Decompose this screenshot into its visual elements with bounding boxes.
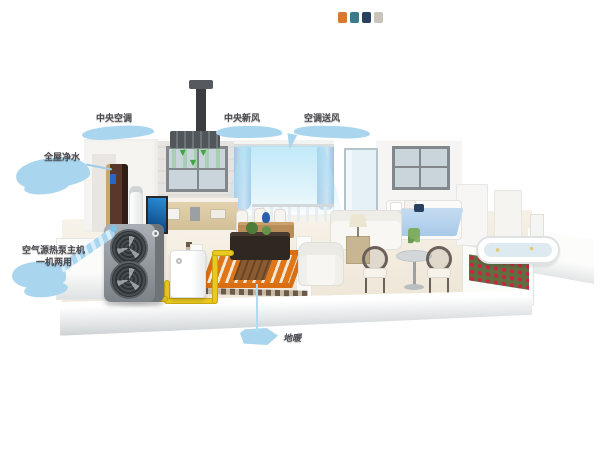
round-table-stem bbox=[413, 258, 416, 286]
table-plant bbox=[246, 222, 258, 234]
chair-legs bbox=[365, 278, 385, 293]
callout-label-ac-supply: 空调送风 bbox=[304, 111, 340, 124]
bed-pillow bbox=[390, 202, 402, 211]
heat-pump-logo-icon bbox=[152, 230, 159, 237]
water-pipe bbox=[212, 250, 234, 256]
kitchen-appliance bbox=[190, 207, 200, 221]
chair-legs bbox=[429, 278, 449, 293]
callout-label-heat-pump-line2: 一机两用 bbox=[36, 255, 72, 268]
water-pipe bbox=[212, 250, 218, 304]
callout-label-water-purifier: 全屋净水 bbox=[44, 150, 80, 163]
lamp-stem bbox=[357, 227, 359, 237]
coffee-table bbox=[230, 232, 290, 260]
callout-label-floor-heating: 地暖 bbox=[283, 331, 304, 344]
callout-bubble-floor-heating bbox=[240, 328, 278, 345]
water-pipe bbox=[164, 298, 218, 304]
vase-plant bbox=[408, 228, 420, 252]
round-table-base bbox=[404, 284, 424, 290]
callout-label-fresh-air: 中央新风 bbox=[224, 111, 260, 124]
callout-bubble-ac-supply bbox=[294, 125, 370, 140]
fresh-air-arrows-icon: ▼ ▼ ▼ bbox=[172, 148, 220, 168]
bath-water bbox=[484, 243, 552, 257]
heat-pump-fan bbox=[110, 261, 148, 299]
hydro-module-indoor-unit bbox=[170, 250, 206, 298]
chair-seat bbox=[427, 268, 451, 278]
leader-dot bbox=[110, 225, 117, 232]
callout-label-central-ac: 中央空调 bbox=[96, 111, 132, 124]
blue-vase bbox=[262, 212, 270, 223]
sofa-pillow bbox=[362, 12, 371, 23]
leader-line-floor-heating bbox=[256, 284, 258, 332]
sofa-pillow bbox=[350, 12, 359, 23]
ceiling-fresh-air-unit bbox=[170, 131, 220, 148]
rattan-chair bbox=[360, 246, 390, 294]
sofa-pillow bbox=[338, 12, 347, 23]
bed-pillow bbox=[414, 204, 424, 212]
scene: ▼ ▼ ▼ bbox=[0, 0, 600, 450]
kitchen-appliance bbox=[166, 208, 180, 220]
callout-bubble-fresh-air bbox=[216, 126, 282, 138]
table-lamp bbox=[349, 214, 367, 227]
kitchen-appliance bbox=[210, 209, 226, 219]
cabinet-display bbox=[110, 174, 116, 184]
kitchen-cabinets bbox=[156, 198, 238, 230]
rug-center-panel bbox=[233, 258, 274, 280]
bed-blanket bbox=[395, 208, 464, 236]
chair-seat bbox=[363, 268, 387, 278]
table-plant bbox=[262, 226, 271, 235]
water-purifier-unit bbox=[129, 186, 143, 228]
fresh-air-roof-duct bbox=[196, 84, 206, 134]
bedroom-window bbox=[392, 146, 450, 190]
sofa-pillow bbox=[374, 12, 383, 23]
rattan-chair bbox=[424, 246, 454, 294]
hydro-unit-logo-icon bbox=[176, 258, 182, 264]
bathtub bbox=[476, 236, 560, 264]
armchair bbox=[298, 242, 344, 286]
fresh-air-duct-cap bbox=[189, 80, 213, 89]
